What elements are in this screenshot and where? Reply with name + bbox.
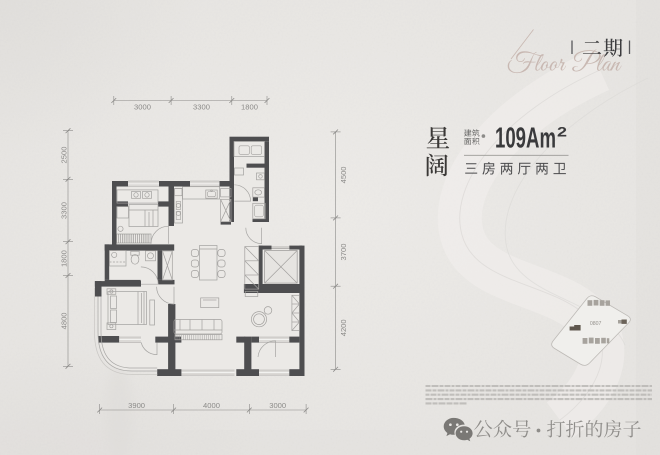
- svg-text:4200: 4200: [339, 319, 348, 336]
- svg-text:3000: 3000: [269, 401, 286, 410]
- svg-text:2500: 2500: [60, 147, 69, 164]
- svg-text:0807: 0807: [590, 321, 602, 327]
- svg-text:4000: 4000: [203, 401, 220, 410]
- svg-text:1800: 1800: [60, 250, 69, 267]
- svg-text:3300: 3300: [193, 103, 210, 112]
- svg-text:4800: 4800: [60, 312, 69, 329]
- svg-text:3900: 3900: [128, 401, 145, 410]
- svg-text:2: 2: [557, 125, 567, 140]
- svg-text:4500: 4500: [339, 166, 348, 183]
- svg-text:3300: 3300: [60, 202, 69, 219]
- svg-text:109Am: 109Am: [495, 123, 556, 155]
- svg-text:1800: 1800: [241, 103, 258, 112]
- svg-text:3000: 3000: [134, 103, 151, 112]
- svg-text:3700: 3700: [339, 244, 348, 261]
